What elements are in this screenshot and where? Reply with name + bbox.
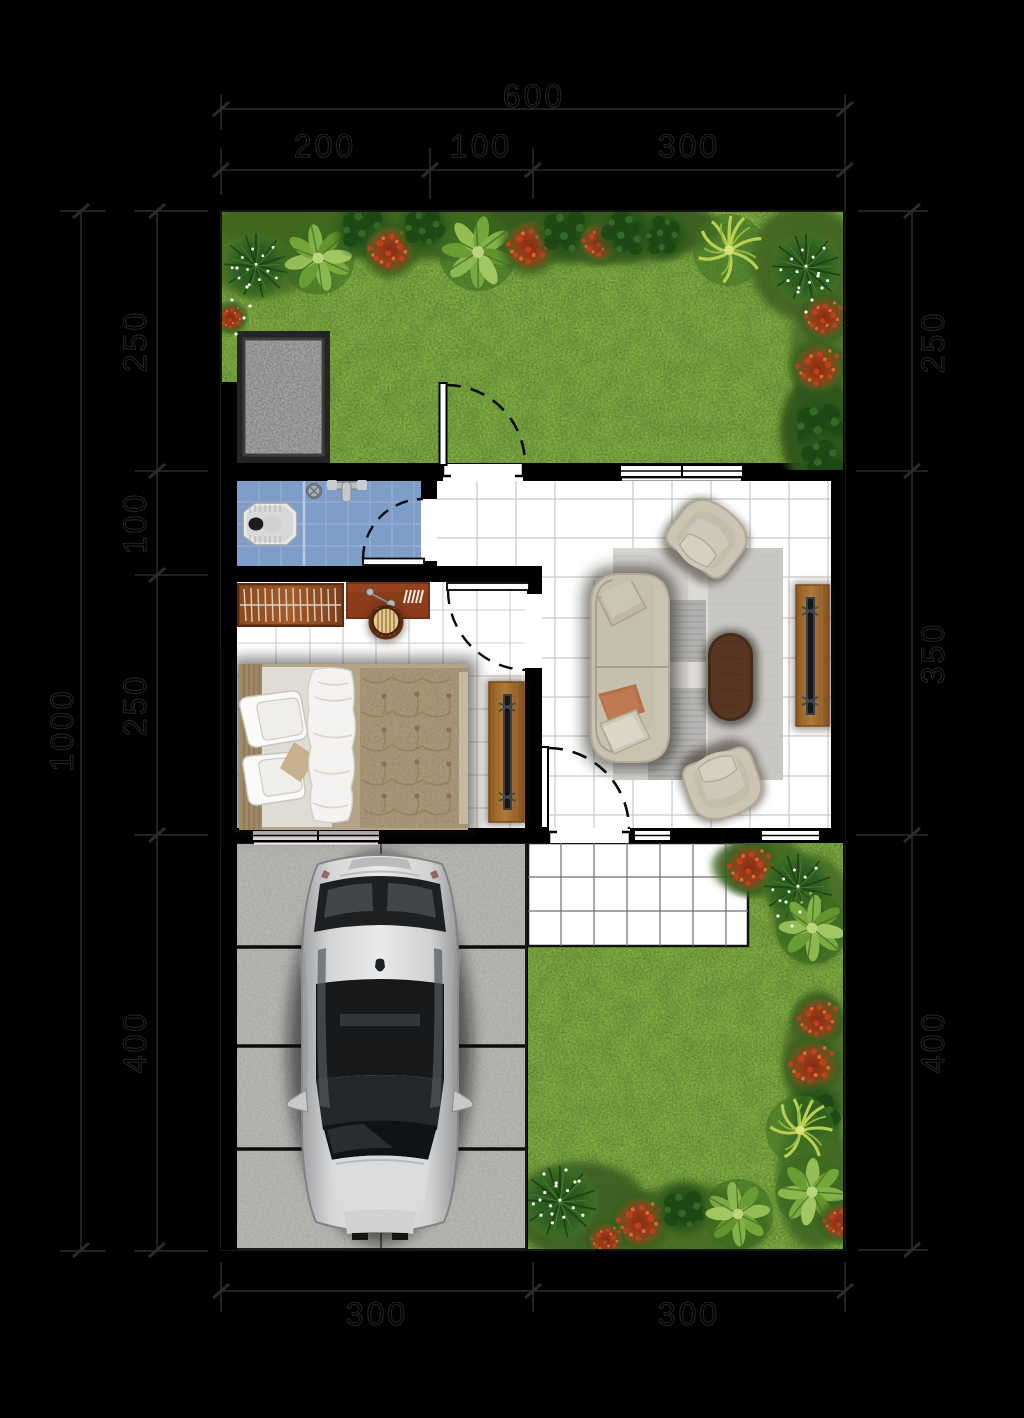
svg-text:200: 200 xyxy=(294,128,356,164)
svg-text:300: 300 xyxy=(658,128,720,164)
svg-text:100: 100 xyxy=(450,128,512,164)
svg-text:400: 400 xyxy=(117,1011,153,1073)
svg-text:1000: 1000 xyxy=(44,688,80,771)
svg-text:250: 250 xyxy=(915,311,951,373)
svg-text:250: 250 xyxy=(117,674,153,736)
svg-text:250: 250 xyxy=(117,310,153,372)
svg-text:600: 600 xyxy=(503,78,565,114)
svg-text:300: 300 xyxy=(658,1296,720,1332)
svg-text:100: 100 xyxy=(117,492,153,554)
svg-text:350: 350 xyxy=(915,622,951,684)
svg-text:300: 300 xyxy=(346,1296,408,1332)
svg-text:400: 400 xyxy=(915,1011,951,1073)
